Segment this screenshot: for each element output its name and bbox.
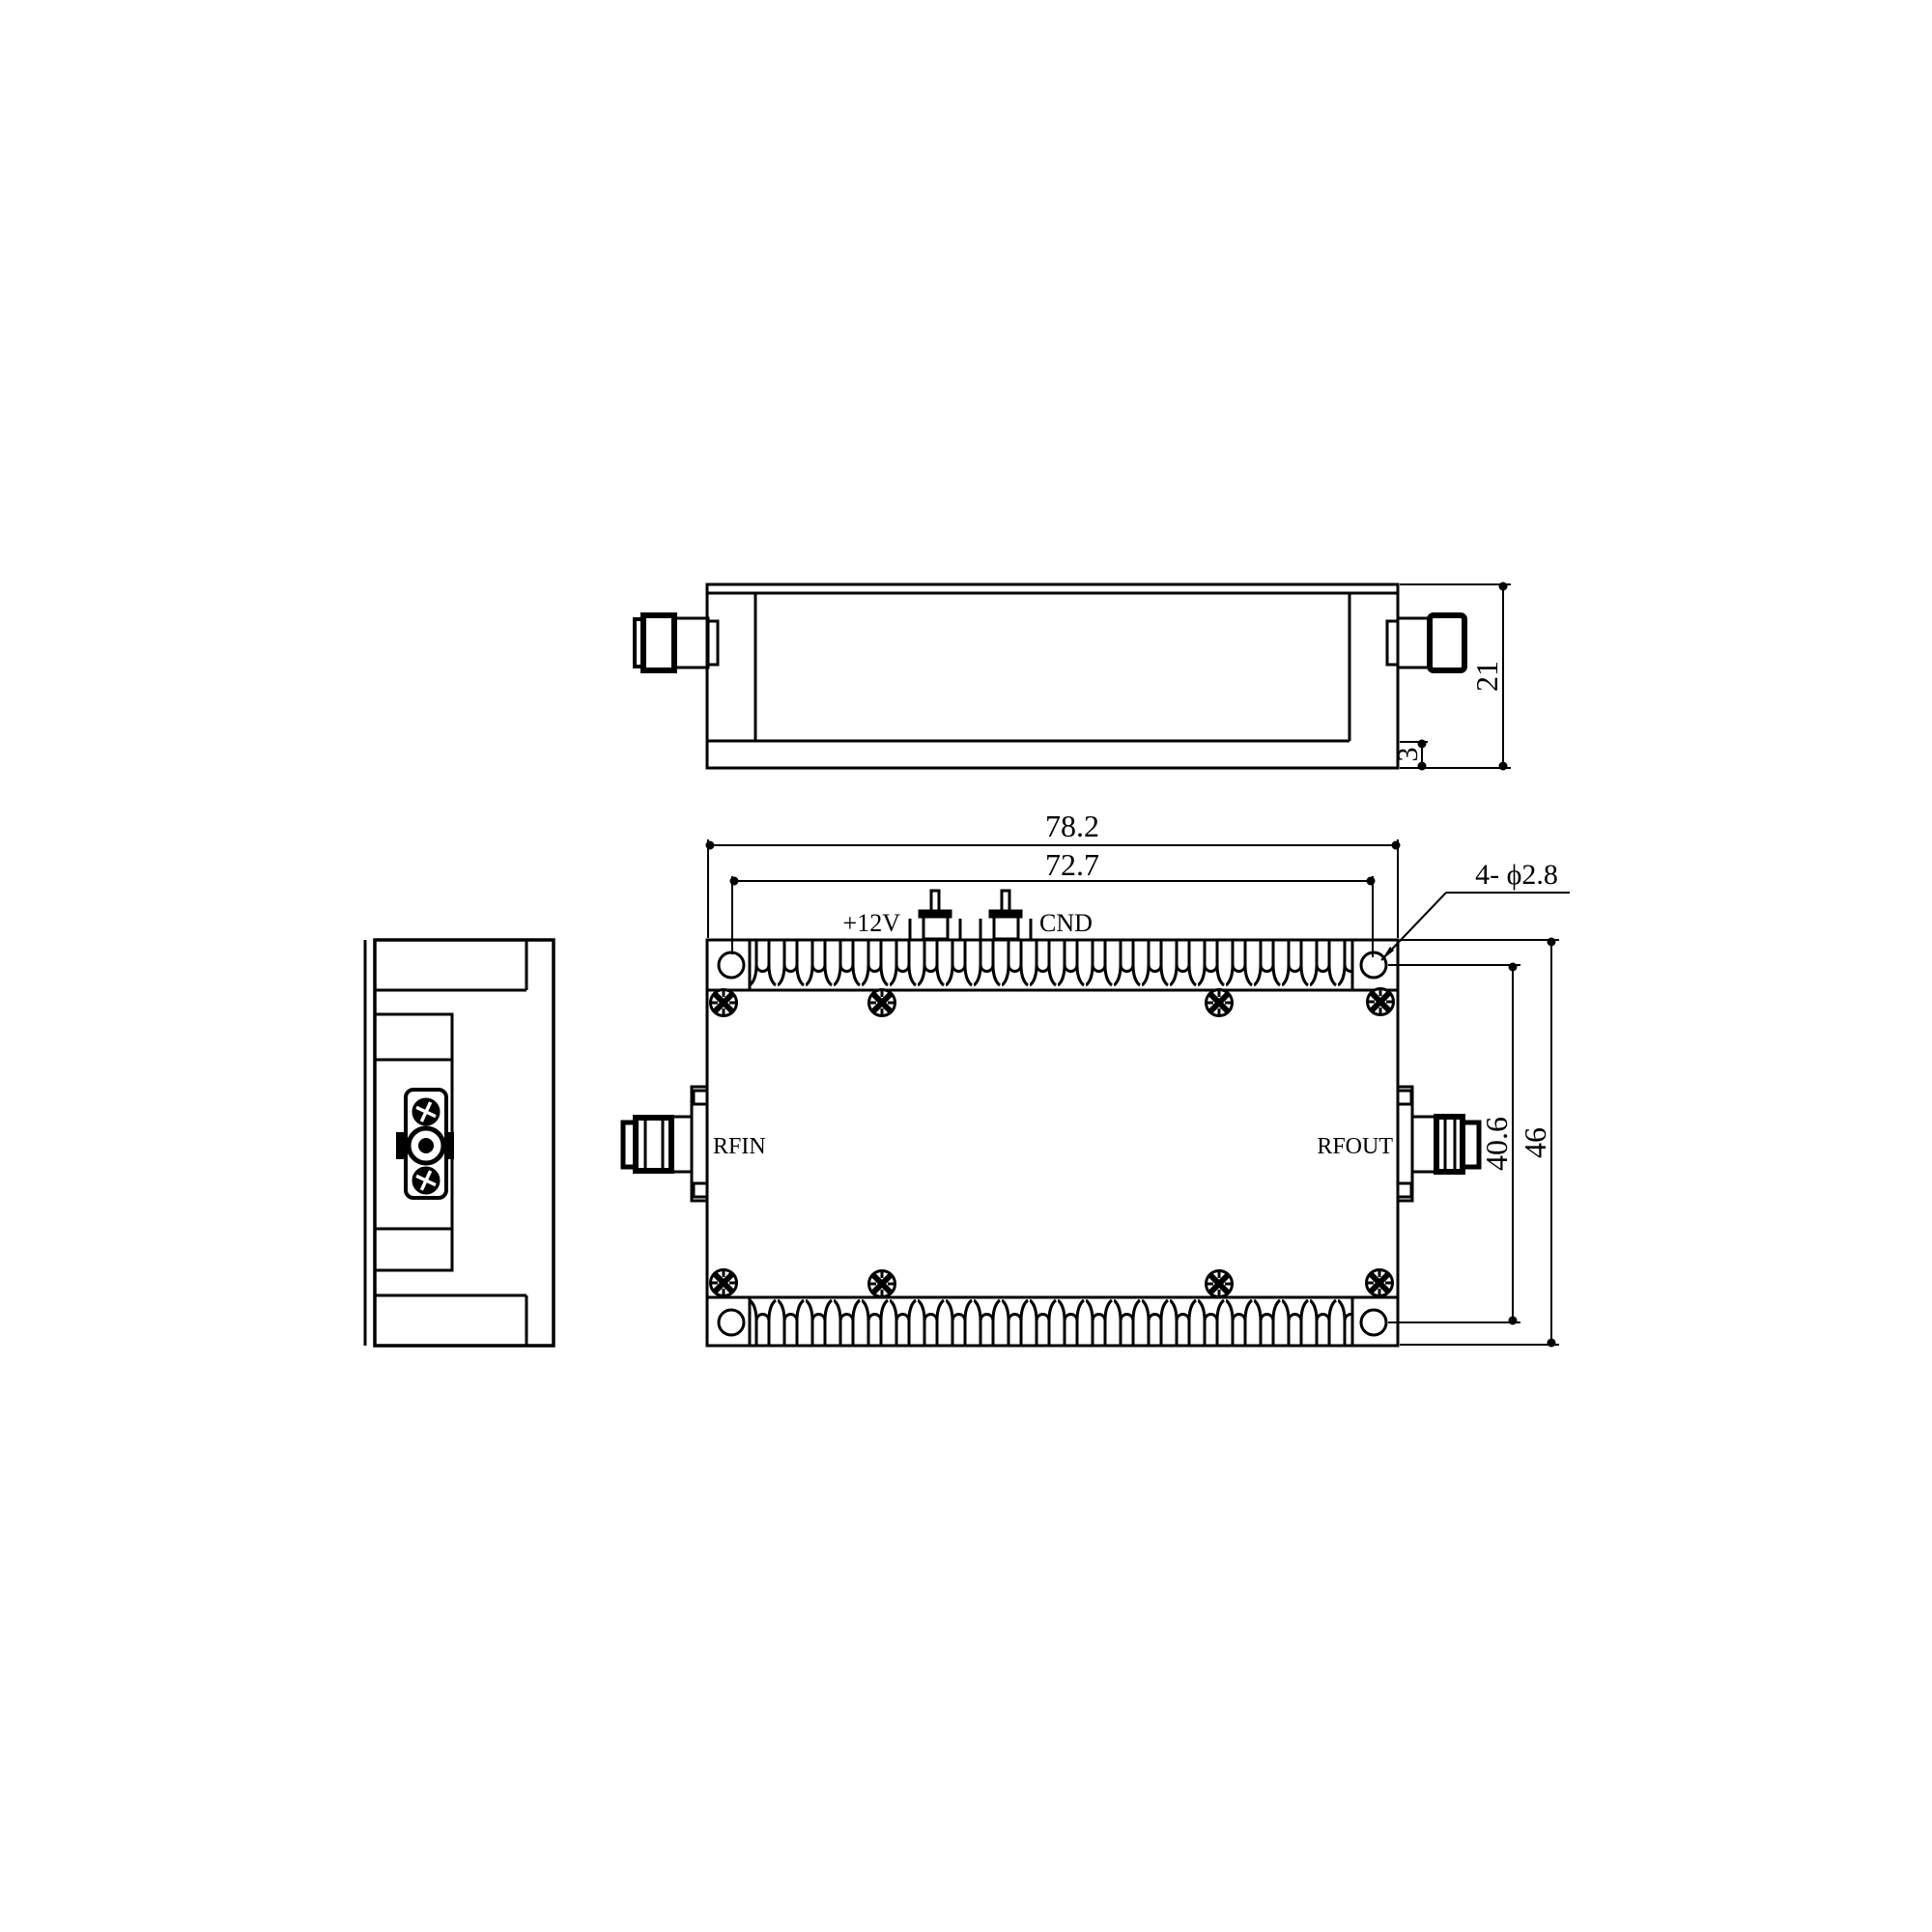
dim-end-dot [1500,763,1507,770]
connector-barrel [1436,1117,1463,1172]
holes-callout [1381,893,1570,960]
cover-screw [1207,1271,1233,1297]
mounting-hole-bottom-left [719,1310,744,1335]
cover-screw [1367,1270,1393,1296]
side-view [365,940,554,1346]
main-body-outline [707,990,1398,1297]
dim-base-thickness-text: 3 [1392,748,1424,762]
connector-neck [1398,618,1430,668]
mounting-hole-top-left [719,952,744,978]
rfin-label: RFIN [713,1134,766,1159]
dim-end-dot [1510,1318,1517,1324]
connector-center-pin [418,1138,434,1153]
cover-screw [1207,990,1233,1016]
dim-top-view-height-text: 21 [1469,661,1504,692]
dim-end-dot [1368,878,1375,885]
dim-end-dot [1393,842,1400,849]
side-view-top-strip [375,940,526,990]
terminal-flanks [910,919,960,939]
power-12v-label: +12V [843,909,901,937]
front-view [623,891,1479,1346]
connector-side-tab-left [396,1132,406,1159]
connector-neck [674,618,708,668]
connector-barrel [1430,615,1464,670]
rfout-label: RFOUT [1317,1134,1393,1159]
flange-screw-section-bottom [1398,1183,1411,1197]
cover-screw [869,990,895,1016]
terminal-body [994,917,1018,939]
terminal-pin [931,891,939,911]
connector-stub [1387,621,1398,665]
dim-end-dot [1500,583,1507,590]
dim-hole-spacing-h-text: 72.7 [1045,847,1099,882]
dim-end-dot [1548,1340,1555,1347]
top-strip-fins [750,940,1352,990]
dim-end-dot [731,878,738,885]
gnd-label: CND [1039,909,1093,937]
connector-neck [1412,1117,1436,1172]
leader-arrowhead [1381,947,1394,960]
dim-end-dot [1419,763,1426,770]
connector-side-tab-right [446,1132,454,1159]
connector-cap [635,619,643,667]
connector-neck [671,1117,692,1172]
dim-hole-spacing-v-text: 40.6 [1479,1117,1514,1171]
cover-screw [711,1270,737,1296]
top-view-rf-connector-right [1387,615,1464,670]
top-view-rf-connector-left [635,615,718,670]
flange-screw-top [412,1097,440,1125]
connector-barrel [636,1118,671,1171]
rf-input-connector [623,1087,707,1201]
side-view-bottom-strip [375,1295,526,1346]
terminal-pin [1002,891,1009,911]
top-fin-strip [707,940,1398,990]
holes-callout-text: 4- ϕ2.8 [1475,859,1558,891]
connector-cap [623,1122,636,1167]
dim-end-dot [1510,964,1517,971]
power-terminal [910,891,960,939]
cover-screw [1368,989,1394,1015]
dim-width-total-text: 78.2 [1045,809,1099,843]
dim-end-dot [707,842,714,849]
bottom-strip-fins [750,1297,1352,1346]
dim-end-dot [1548,939,1555,946]
cover-screw [869,1271,895,1297]
dim-end-dot [1419,741,1426,748]
flange-screw-bottom [412,1166,440,1194]
dim-overall-height-text: 46 [1518,1127,1552,1158]
mounting-hole-bottom-right [1361,1310,1386,1335]
terminal-flanks [980,919,1031,939]
cover-screw [711,990,737,1016]
flange-screw-section-top [1398,1091,1411,1104]
connector-barrel [643,615,674,670]
terminal-body [923,917,948,939]
flange-screw-section-bottom [694,1183,707,1197]
ground-terminal [980,891,1031,939]
engineering-drawing: RFIN RFOUT +12V CND [0,0,1932,1932]
top-view [635,584,1464,768]
flange-screw-section-top [694,1091,707,1104]
rf-output-connector [1398,1087,1479,1201]
bottom-fin-strip [707,1297,1398,1346]
